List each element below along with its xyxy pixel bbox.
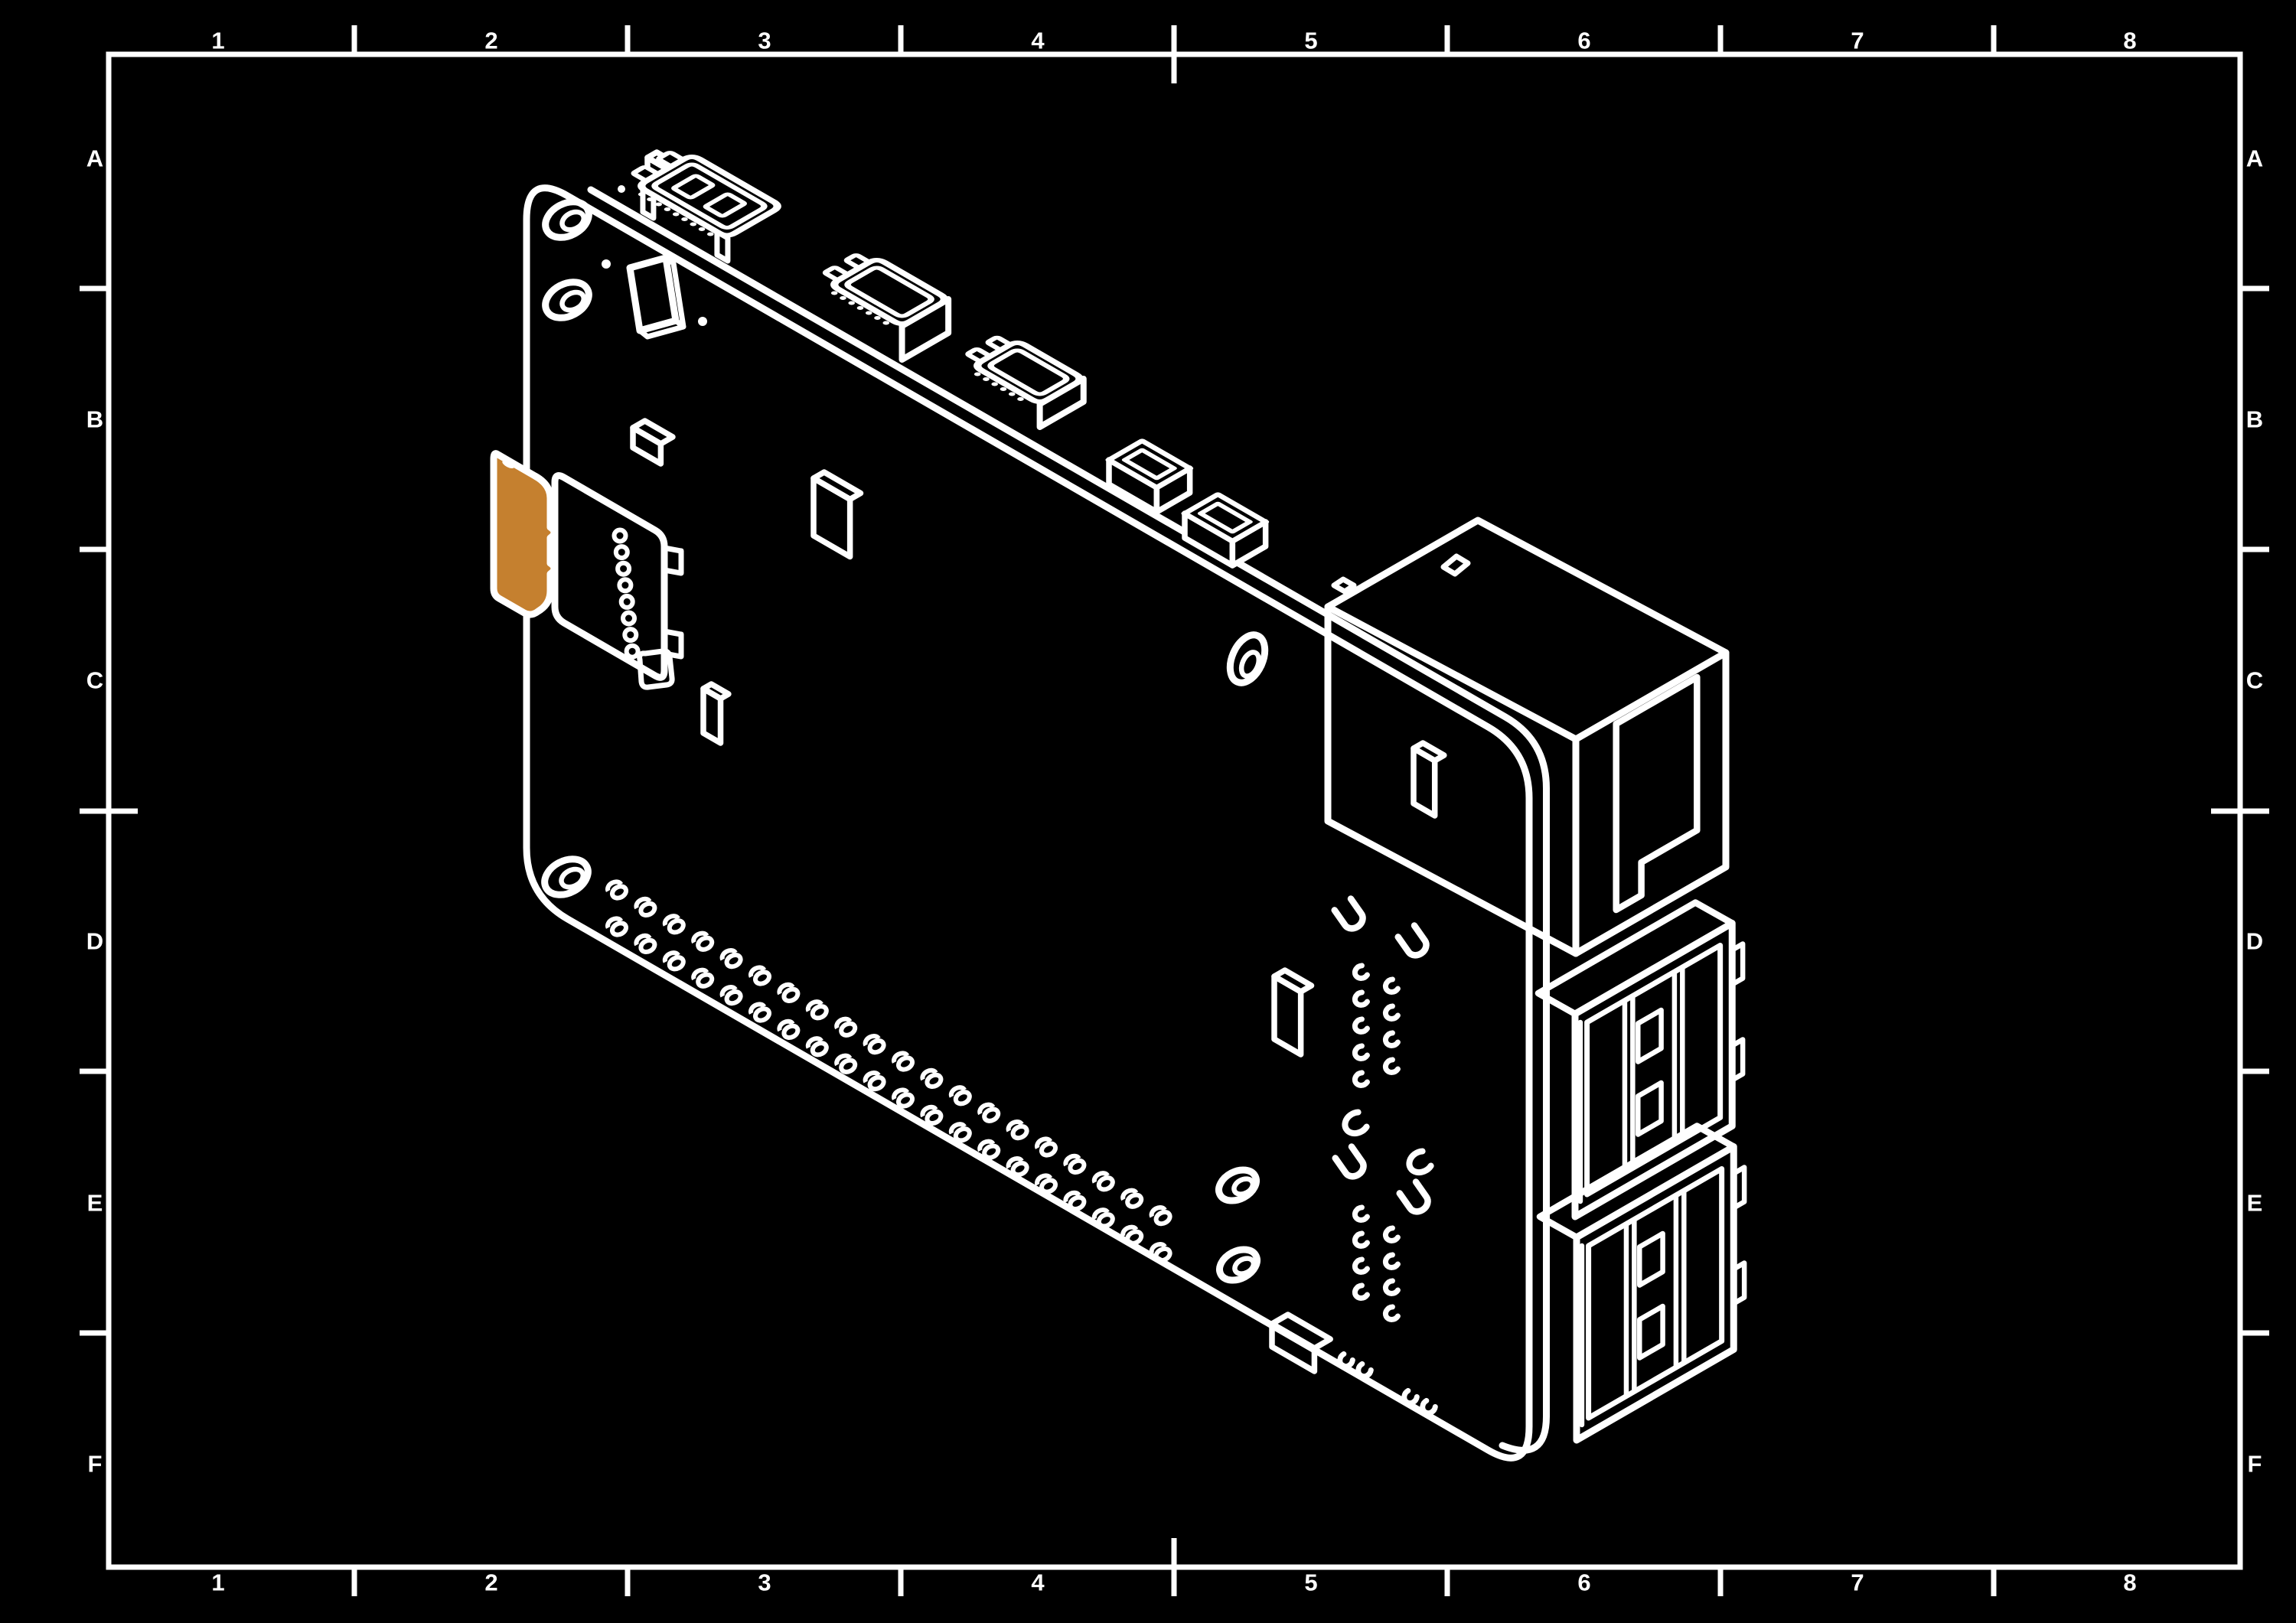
grid-col-label-bottom: 5 [1304,1569,1317,1596]
grid-col-label-bottom: 6 [1577,1569,1590,1596]
grid-row-label-right: D [2246,928,2263,955]
grid-col-label-top: 7 [1851,28,1864,54]
grid-col-label-bottom: 2 [484,1569,497,1596]
grid-col-label-bottom: 8 [2123,1569,2136,1596]
schematic-sheet: 1122334455667788AABBCCDDEEFF [0,0,2296,1623]
grid-col-label-bottom: 3 [758,1569,771,1596]
grid-row-label-left: B [86,406,103,433]
grid-row-label-left: F [88,1451,103,1478]
grid-row-label-right: F [2248,1451,2262,1478]
grid-col-label-top: 6 [1577,28,1590,54]
grid-row-label-left: A [86,145,103,172]
grid-col-label-bottom: 4 [1031,1569,1045,1596]
grid-row-label-left: D [86,928,103,955]
grid-col-label-top: 1 [211,28,224,54]
silkscreen-dot [698,317,707,326]
sheet-background [0,0,2296,1623]
grid-col-label-top: 3 [758,28,771,54]
grid-col-label-bottom: 7 [1851,1569,1864,1596]
grid-row-label-right: A [2246,145,2263,172]
grid-row-label-right: B [2246,406,2263,433]
silkscreen-dot [618,185,625,193]
grid-col-label-top: 4 [1031,28,1045,54]
grid-row-label-left: C [86,667,103,694]
schematic-canvas: 1122334455667788AABBCCDDEEFF [0,0,2296,1623]
grid-col-label-top: 5 [1304,28,1317,54]
grid-row-label-right: E [2247,1190,2263,1217]
grid-row-label-right: C [2246,667,2263,694]
silkscreen-dot [602,259,611,269]
grid-col-label-top: 2 [484,28,497,54]
grid-col-label-bottom: 1 [211,1569,224,1596]
grid-col-label-top: 8 [2123,28,2136,54]
grid-row-label-left: E [87,1190,103,1217]
